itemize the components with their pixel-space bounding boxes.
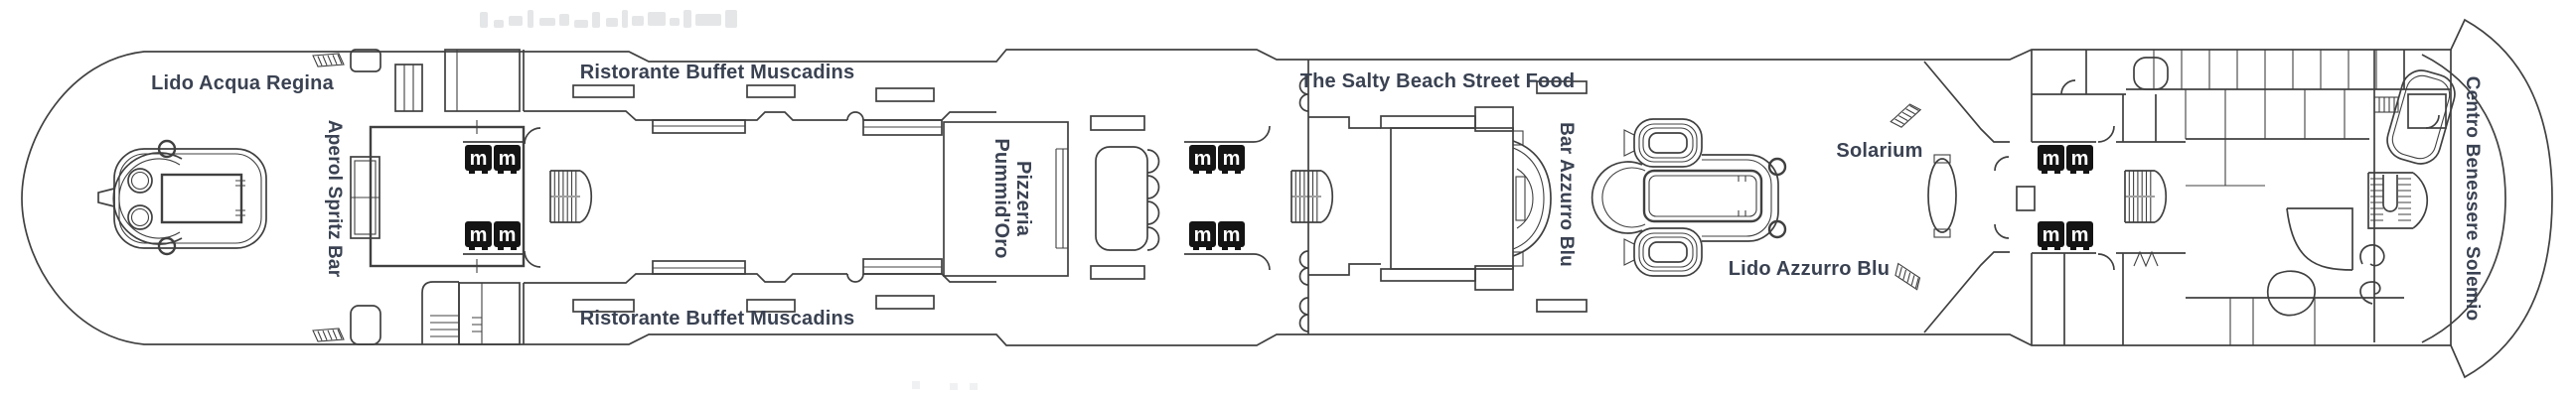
- stairs-forward: [550, 171, 591, 222]
- deck-plan-page: m: [0, 0, 2576, 397]
- elevator-icon: [1218, 145, 1245, 174]
- steps-icon: [313, 54, 344, 66]
- stairs-icon: [2125, 171, 2166, 222]
- buffet-area: [524, 50, 996, 344]
- elevator-icon: [465, 221, 492, 250]
- elevator-icon: [2066, 221, 2093, 250]
- elevator-icon: [494, 221, 521, 250]
- steps-icon: [1892, 262, 1923, 291]
- aperol-bar-area: [313, 50, 540, 344]
- steps-icon: [313, 329, 344, 341]
- stairs-icon: [1291, 171, 1332, 222]
- salty-beach-area: [1308, 81, 1587, 312]
- hull-outline: [22, 20, 2552, 377]
- label-buffet-top: Ristorante Buffet Muscadins: [580, 62, 855, 83]
- ghost-artifacts-bottom: [912, 381, 978, 390]
- bar-azzurro-stage: [1513, 141, 1551, 256]
- whirlpool-icon: [1624, 228, 1702, 276]
- elevator-icon: [2038, 145, 2064, 174]
- label-solarium: Solarium: [1836, 140, 1922, 162]
- aft-lobby: [2032, 50, 2186, 345]
- deck-plan: m: [0, 0, 2576, 397]
- elevator-icon: [465, 145, 492, 174]
- elevator-bank-forward: [463, 142, 524, 254]
- label-lido-acqua-regina: Lido Acqua Regina: [151, 72, 334, 94]
- stairs-mid: [1291, 171, 1332, 222]
- stairs-icon: [550, 171, 591, 222]
- label-buffet-bottom: Ristorante Buffet Muscadins: [580, 308, 855, 330]
- ghost-artifacts-top: [480, 10, 737, 28]
- elevator-icon: [494, 145, 521, 174]
- label-pizzeria-line2: Pummid'Oro: [990, 138, 1012, 258]
- elevator-icon: [1189, 221, 1216, 250]
- elevator-icon: [2066, 145, 2093, 174]
- steps-icon: [1890, 101, 1921, 130]
- label-bar-azzurro-blu: Bar Azzurro Blu: [1556, 122, 1577, 267]
- label-centro-benessere: Centro Benessere Solemio: [2462, 76, 2483, 322]
- label-pizzeria-line1: Pizzeria: [1012, 161, 1034, 237]
- elevator-icon: [1189, 145, 1216, 174]
- spa-area: [2126, 50, 2505, 345]
- elevator-icon: [1218, 221, 1245, 250]
- stairs-aft: [2125, 171, 2166, 222]
- elevator-bank-aft: [2038, 126, 2114, 270]
- elevator-icon: [2038, 221, 2064, 250]
- whirlpool-icon: [1624, 119, 1702, 167]
- elevator-bank-mid: [1184, 126, 1270, 270]
- pool-lido-acqua-regina: [98, 141, 266, 254]
- label-lido-azzurro-blu: Lido Azzurro Blu: [1729, 258, 1890, 280]
- solarium-area: [1890, 62, 2035, 332]
- label-salty-beach: The Salty Beach Street Food: [1300, 70, 1576, 92]
- pool-lido-azzurro-blu: [1592, 119, 1785, 276]
- pizzeria-area: [944, 116, 1159, 279]
- label-aperol-spritz-bar: Aperol Spritz Bar: [324, 120, 345, 278]
